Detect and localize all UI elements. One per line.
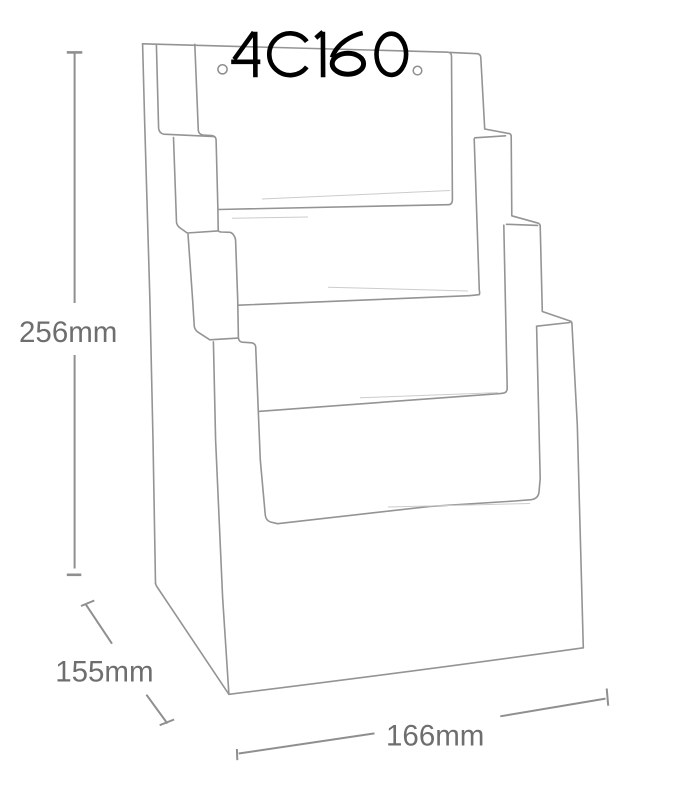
svg-text:155mm: 155mm — [55, 656, 153, 689]
svg-text:256mm: 256mm — [19, 316, 117, 349]
svg-text:166mm: 166mm — [386, 719, 484, 752]
